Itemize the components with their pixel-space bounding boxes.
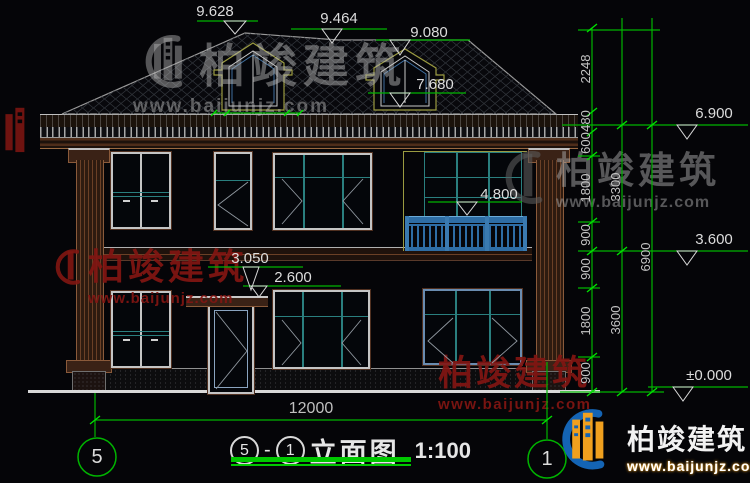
left-pilaster-pedestal — [72, 371, 106, 392]
level-label-ridge3: 9.080 — [394, 24, 464, 41]
window-mullion — [302, 292, 304, 367]
window-mullion — [341, 292, 343, 367]
grid-bubble-right-number: 1 — [532, 448, 562, 471]
level-label-ridge: 9.628 — [180, 3, 250, 20]
level-label-ridge2: 9.464 — [304, 10, 374, 27]
window-handle — [151, 339, 158, 341]
window-2f-center — [273, 153, 372, 230]
window-2f-left — [111, 152, 171, 229]
window-rail — [113, 331, 169, 332]
level-label-floor2: 3.600 — [679, 231, 749, 248]
window-mullion — [489, 291, 491, 363]
grid-bubble-left-number: 5 — [82, 446, 112, 469]
dim-label-total-width: 12000 — [271, 400, 351, 418]
window-rail — [425, 314, 520, 315]
window-mullion — [303, 155, 305, 228]
window-rail — [275, 316, 368, 317]
balcony-top-edge — [403, 151, 527, 152]
window-rail — [113, 192, 169, 193]
balcony-railing — [405, 216, 527, 251]
railing-top-rail — [405, 216, 527, 223]
cad-elevation-canvas: 柏竣建筑 www.baijunjz.com 柏竣建筑 www.baijunjz.… — [0, 0, 750, 483]
window-handle — [123, 339, 130, 341]
window-mullion — [342, 155, 344, 228]
window-handle — [123, 200, 130, 202]
title-underline-thin — [231, 464, 411, 466]
window-1f-center — [273, 290, 370, 369]
window-rail — [216, 180, 250, 181]
level-label-canopy-top: 3.050 — [215, 250, 285, 267]
railing-post — [485, 216, 489, 251]
ground-line — [28, 390, 600, 393]
dim-label-3300: 3300 — [609, 155, 623, 219]
main-roof — [62, 33, 556, 114]
window-mullion — [140, 293, 142, 366]
title-scale: 1:100 — [415, 438, 471, 464]
level-label-ground: ±0.000 — [670, 367, 748, 384]
window-1f-left — [111, 291, 171, 368]
level-label-canopy: 2.600 — [258, 269, 328, 286]
window-rail — [113, 196, 169, 197]
title-underline-thick — [231, 457, 411, 462]
glazing-mullion — [456, 153, 458, 219]
dim-label-900-c: 900 — [579, 341, 593, 405]
level-label-balcony: 4.800 — [464, 186, 534, 203]
window-rail — [113, 335, 169, 336]
dim-label-3600: 3600 — [609, 288, 623, 352]
right-pilaster-pedestal — [532, 371, 566, 392]
floor-band-line — [104, 254, 532, 255]
window-1f-right — [423, 289, 522, 365]
railing-post — [523, 216, 527, 251]
window-handle — [151, 200, 158, 202]
window-mullion — [455, 291, 457, 363]
railing-post — [445, 216, 449, 251]
left-pilaster-shaft — [76, 160, 104, 360]
door-leaf — [214, 310, 248, 388]
railing-balusters — [405, 226, 527, 247]
roof-drawing — [0, 0, 750, 483]
window-rail — [275, 177, 370, 178]
level-label-dormer: 7.680 — [400, 76, 470, 93]
right-pilaster-shaft — [536, 160, 564, 360]
dim-label-6900: 6900 — [639, 225, 653, 289]
plinth — [88, 368, 544, 391]
balcony-side-edge — [403, 151, 404, 251]
entry-door — [208, 304, 254, 394]
railing-post — [405, 216, 409, 251]
door-canopy — [186, 296, 268, 307]
glazing-rail — [425, 177, 521, 178]
railing-bottom-rail — [405, 247, 527, 251]
window-2f-narrow — [214, 152, 252, 230]
level-label-eave: 6.900 — [679, 105, 749, 122]
window-mullion — [140, 154, 142, 227]
